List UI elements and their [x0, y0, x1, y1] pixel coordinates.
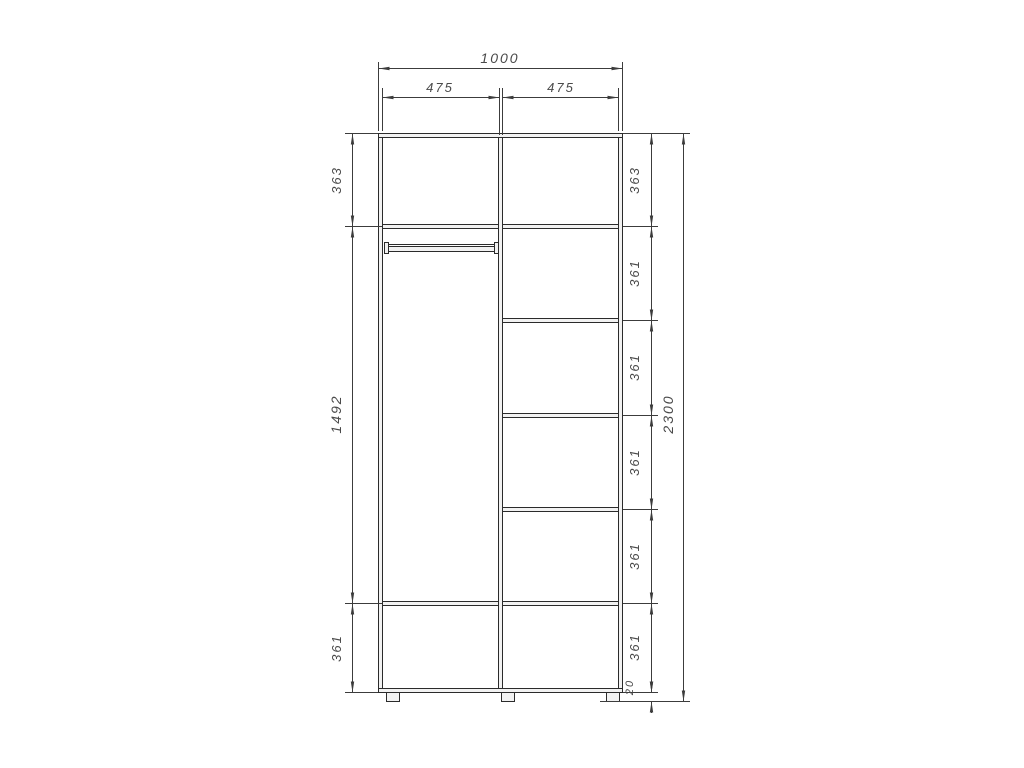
dim-text-right-width: 475	[547, 80, 575, 95]
foot-center	[502, 693, 515, 702]
hanging-rail	[385, 247, 499, 252]
dim-text-right-section-6: 361	[627, 633, 642, 661]
left-side-panel	[379, 134, 383, 693]
technical-drawing-canvas: 1000 475 475 363 1492 361 363 36	[0, 0, 1024, 768]
center-partition	[499, 138, 503, 689]
dim-text-plinth-height: 20	[624, 679, 636, 696]
dim-text-overall-width: 1000	[480, 50, 519, 66]
dim-text-right-section-2: 361	[627, 259, 642, 287]
right-shelf-1	[503, 319, 619, 323]
right-shelf-2	[503, 414, 619, 418]
bottom-panel	[379, 689, 623, 693]
foot-right	[607, 693, 620, 702]
foot-left	[387, 693, 400, 702]
dim-text-right-section-1: 363	[627, 166, 642, 194]
dim-text-left-top-section: 363	[329, 166, 344, 194]
top-panel	[379, 134, 623, 138]
dim-text-right-section-3: 361	[627, 353, 642, 381]
overall-height-dimension: 2300	[660, 134, 684, 702]
rail-bracket-right	[495, 243, 499, 254]
wardrobe-body	[379, 134, 623, 702]
rail-bracket-left	[385, 243, 389, 254]
dim-text-left-middle-section: 1492	[328, 394, 344, 433]
dim-text-left-width: 475	[426, 80, 454, 95]
left-height-dimensions: 363 1492 361	[328, 134, 382, 693]
right-height-dimensions: 363 361 361 361 361 361 20	[600, 134, 690, 714]
dim-text-left-bottom-section: 361	[329, 634, 344, 662]
right-shelf-3	[503, 508, 619, 512]
dim-text-right-section-4: 361	[627, 448, 642, 476]
wardrobe-dimension-drawing: 1000 475 475 363 1492 361 363 36	[0, 0, 1024, 768]
dim-text-overall-height: 2300	[660, 394, 676, 434]
dim-text-right-section-5: 361	[627, 542, 642, 570]
right-side-panel	[619, 134, 623, 693]
top-width-dimensions: 1000 475 475	[379, 50, 623, 135]
